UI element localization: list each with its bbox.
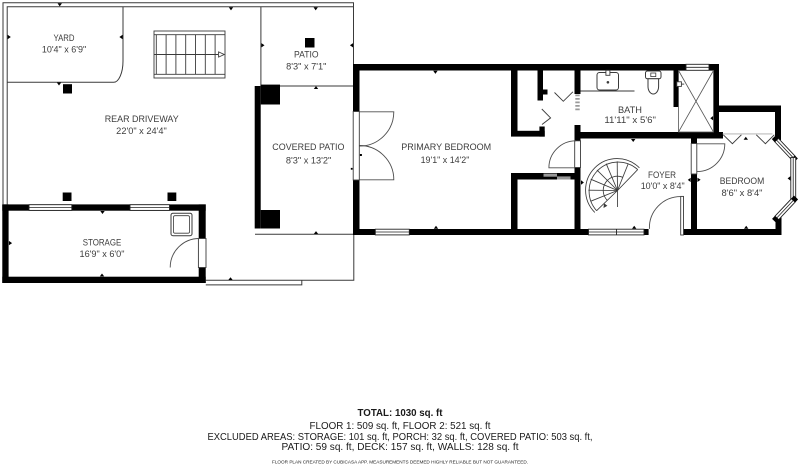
svg-text:FLOOR 1: 509 sq. ft, FLOOR 2:: FLOOR 1: 509 sq. ft, FLOOR 2: 521 sq. ft: [310, 421, 491, 432]
svg-text:8'3" x 7'1": 8'3" x 7'1": [286, 62, 326, 72]
svg-text:YARD: YARD: [54, 33, 75, 43]
svg-text:PATIO: 59 sq. ft, DECK: 157 sq: PATIO: 59 sq. ft, DECK: 157 sq. ft, WALL…: [282, 442, 519, 453]
svg-text:16'9" x 6'0": 16'9" x 6'0": [80, 249, 125, 259]
svg-text:COVERED PATIO: COVERED PATIO: [272, 142, 344, 152]
svg-text:FOYER: FOYER: [648, 170, 676, 180]
svg-text:BEDROOM: BEDROOM: [720, 176, 765, 186]
svg-text:BATH: BATH: [618, 105, 642, 115]
svg-text:PRIMARY BEDROOM: PRIMARY BEDROOM: [401, 142, 491, 152]
svg-text:10'4" x 6'9": 10'4" x 6'9": [42, 44, 86, 54]
svg-text:8'6" x 8'4": 8'6" x 8'4": [722, 188, 763, 198]
svg-text:STORAGE: STORAGE: [83, 238, 122, 248]
svg-text:PATIO: PATIO: [294, 50, 319, 60]
svg-text:22'0" x 24'4": 22'0" x 24'4": [116, 126, 167, 136]
svg-text:REAR DRIVEWAY: REAR DRIVEWAY: [105, 114, 179, 124]
svg-text:19'1" x 14'2": 19'1" x 14'2": [421, 155, 470, 165]
svg-text:8'3" x 13'2": 8'3" x 13'2": [286, 156, 331, 166]
svg-text:11'11" x 5'6": 11'11" x 5'6": [604, 115, 656, 125]
svg-text:FLOOR PLAN CREATED BY CUBICASA: FLOOR PLAN CREATED BY CUBICASA APP. MEAS…: [272, 459, 528, 465]
svg-text:10'0" x 8'4": 10'0" x 8'4": [641, 181, 685, 191]
svg-text:TOTAL: 1030 sq. ft: TOTAL: 1030 sq. ft: [358, 408, 444, 419]
